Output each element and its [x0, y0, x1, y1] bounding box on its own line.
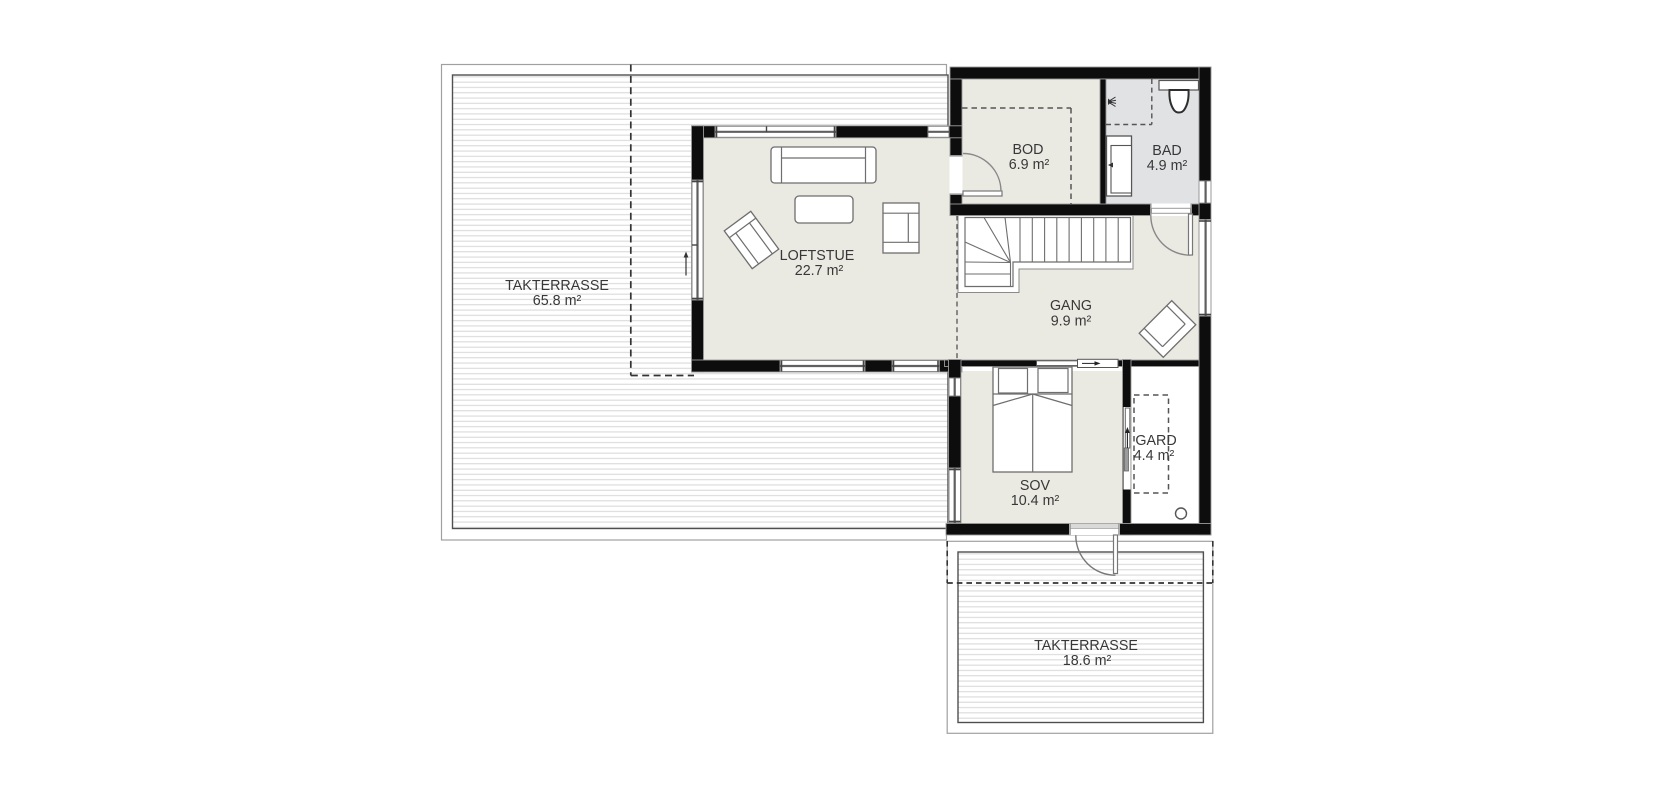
svg-text:4.4 m²: 4.4 m² — [1134, 448, 1175, 464]
svg-text:TAKTERRASSE: TAKTERRASSE — [1034, 638, 1138, 654]
svg-text:22.7 m²: 22.7 m² — [795, 263, 844, 279]
svg-text:LOFTSTUE: LOFTSTUE — [780, 248, 855, 264]
svg-text:65.8 m²: 65.8 m² — [533, 293, 582, 309]
svg-text:GARD: GARD — [1135, 433, 1176, 449]
svg-text:TAKTERRASSE: TAKTERRASSE — [505, 278, 609, 294]
svg-text:BOD: BOD — [1013, 142, 1044, 158]
svg-text:9.9 m²: 9.9 m² — [1051, 314, 1092, 330]
svg-text:10.4 m²: 10.4 m² — [1011, 493, 1060, 509]
svg-text:SOV: SOV — [1020, 478, 1051, 494]
svg-text:6.9 m²: 6.9 m² — [1009, 157, 1050, 173]
svg-text:BAD: BAD — [1152, 143, 1181, 159]
svg-text:GANG: GANG — [1050, 298, 1092, 314]
svg-text:4.9 m²: 4.9 m² — [1147, 158, 1188, 174]
svg-text:18.6 m²: 18.6 m² — [1063, 653, 1112, 669]
